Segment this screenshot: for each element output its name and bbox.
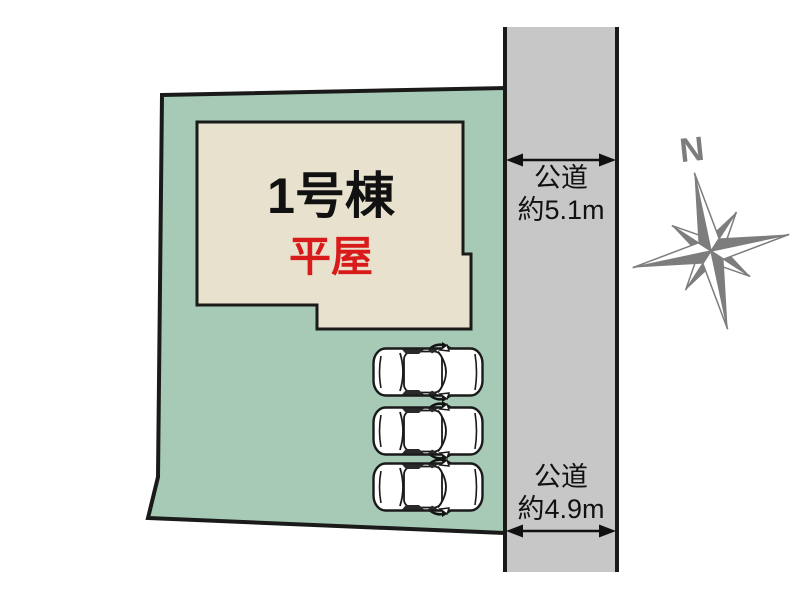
car-icon (374, 401, 483, 461)
road-width-label-bottom: 公道 約4.9m (505, 461, 617, 526)
building-footprint (197, 122, 471, 329)
road-width-label-top-line2: 約5.1m (505, 194, 617, 226)
building-storey-label: 平屋 (197, 236, 465, 278)
road-width-label-bottom-line2: 約4.9m (505, 493, 617, 525)
compass-rose (616, 156, 800, 346)
road-width-label-bottom-line1: 公道 (505, 461, 617, 493)
car-icon (374, 342, 483, 402)
car-icon (374, 457, 483, 517)
parking-cars (374, 342, 483, 517)
site-plan-canvas (0, 0, 800, 602)
road-width-label-top: 公道 約5.1m (505, 162, 617, 227)
building-name-label: 1号棟 (197, 171, 465, 221)
site-plan: 1号棟 平屋 公道 約5.1m 公道 約4.9m N (0, 0, 800, 602)
compass-north-label: N (670, 129, 714, 172)
road-width-label-top-line1: 公道 (505, 162, 617, 194)
